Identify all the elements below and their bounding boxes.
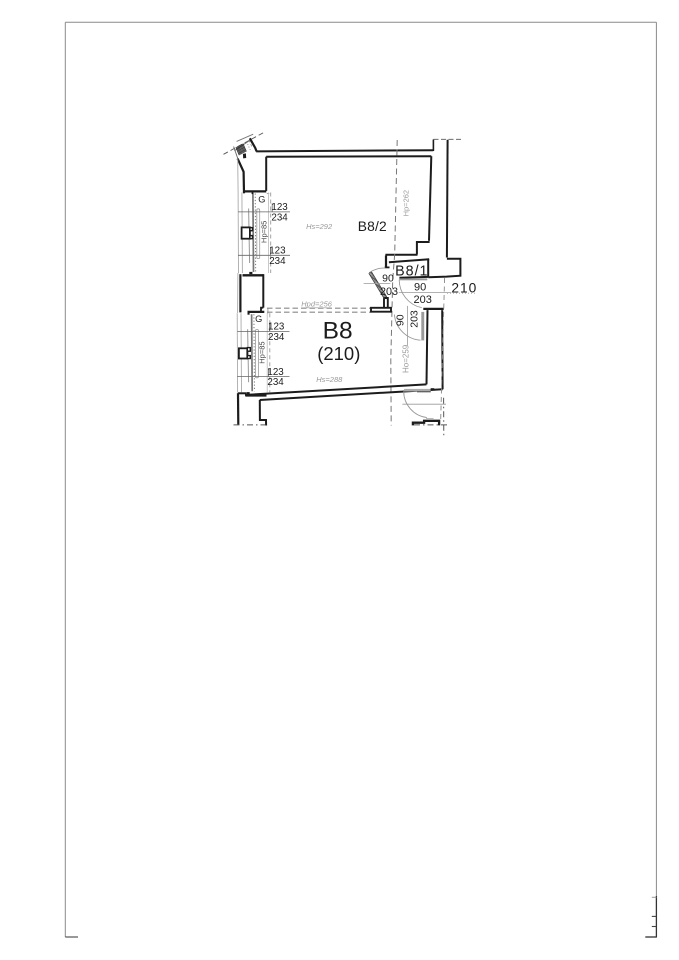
- svg-text:G: G: [258, 195, 265, 205]
- svg-text:(210): (210): [317, 343, 360, 364]
- svg-text:123: 123: [271, 202, 288, 213]
- svg-text:210: 210: [451, 280, 477, 295]
- svg-text:90: 90: [395, 314, 407, 326]
- svg-text:234: 234: [267, 377, 284, 388]
- svg-text:Hp=85: Hp=85: [260, 221, 269, 243]
- svg-text:B8/2: B8/2: [358, 219, 387, 234]
- svg-text:234: 234: [269, 256, 286, 267]
- svg-text:G: G: [255, 314, 262, 324]
- svg-text:Hs=292: Hs=292: [306, 222, 333, 231]
- svg-text:Hp=85: Hp=85: [258, 341, 267, 363]
- svg-text:203: 203: [380, 286, 398, 298]
- svg-text:203: 203: [414, 294, 432, 306]
- svg-text:Ho=259: Ho=259: [401, 344, 410, 373]
- svg-text:90: 90: [382, 273, 394, 285]
- svg-text:Hp=262: Hp=262: [401, 190, 410, 216]
- svg-text:Hs=288: Hs=288: [316, 375, 343, 384]
- svg-text:234: 234: [268, 332, 285, 343]
- svg-text:B8: B8: [323, 318, 353, 345]
- svg-text:123: 123: [267, 367, 284, 378]
- svg-text:B8/1: B8/1: [395, 263, 428, 279]
- svg-text:123: 123: [268, 322, 285, 333]
- svg-text:203: 203: [408, 310, 420, 328]
- svg-text:123: 123: [269, 246, 286, 257]
- svg-text:Hpd=256: Hpd=256: [301, 300, 332, 309]
- svg-text:90: 90: [414, 282, 426, 294]
- svg-text:234: 234: [271, 213, 288, 224]
